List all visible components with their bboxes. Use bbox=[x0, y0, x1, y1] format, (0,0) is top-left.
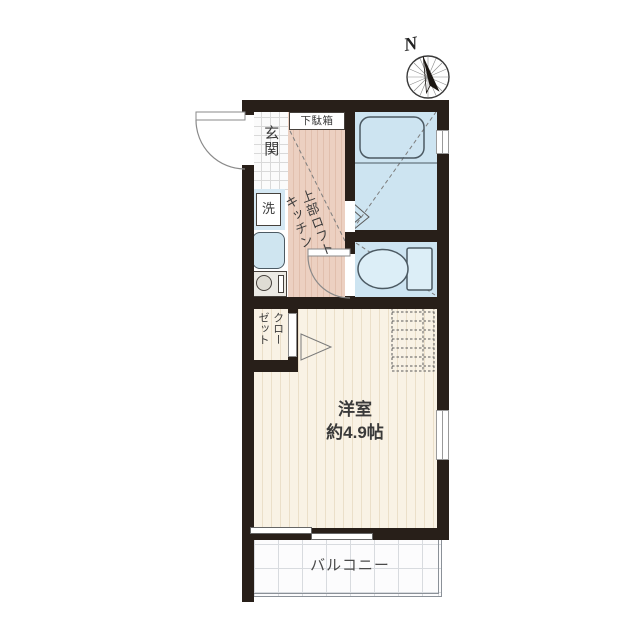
doors-compass-layer bbox=[0, 0, 640, 640]
shoe-cabinet-label: 下駄箱 bbox=[289, 112, 345, 130]
compass-icon bbox=[407, 55, 449, 98]
entrance-label: 玄関 bbox=[262, 125, 279, 157]
closet-label-col2: ゼット bbox=[256, 312, 269, 358]
closet-label-col1: クロー bbox=[271, 312, 284, 358]
entrance-door-icon bbox=[196, 112, 245, 169]
balcony-label: バルコニー bbox=[280, 556, 420, 576]
main-room-name: 洋室 bbox=[338, 399, 372, 422]
main-room-label: 洋室 約4.9帖 bbox=[295, 396, 415, 448]
main-room-size: 約4.9帖 bbox=[326, 422, 384, 445]
closet-label: クロー ゼット bbox=[252, 312, 288, 358]
